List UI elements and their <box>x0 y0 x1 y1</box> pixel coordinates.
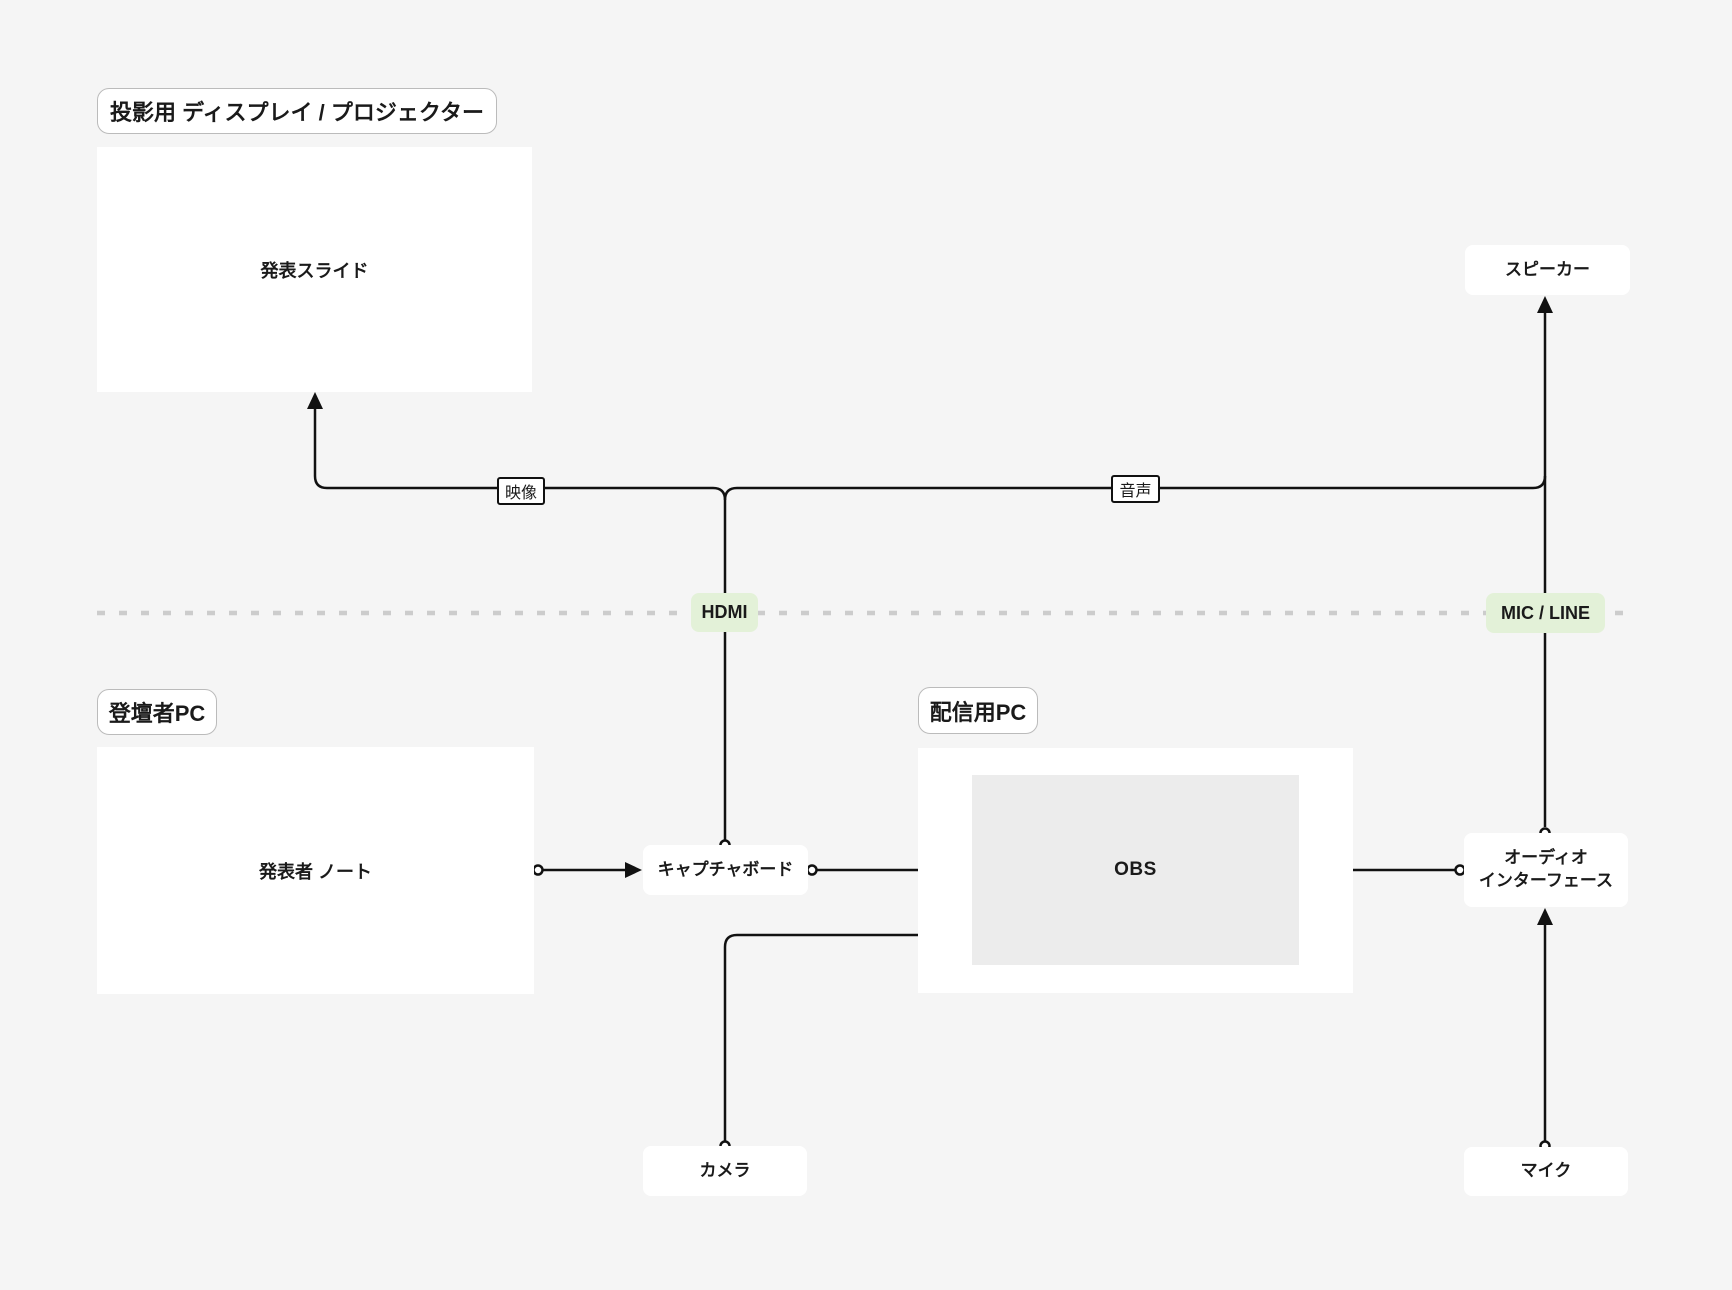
node-slides-label: 発表スライド <box>261 257 369 283</box>
edge-label-video-text: 映像 <box>505 479 537 503</box>
node-capture-board-label: キャプチャボード <box>658 859 794 882</box>
connector-label-hdmi: HDMI <box>691 593 758 632</box>
section-label-presenter-pc: 登壇者PC <box>97 689 217 735</box>
node-camera: カメラ <box>643 1146 807 1196</box>
node-obs: OBS <box>972 775 1299 965</box>
node-audio-interface-label-line2: インターフェース <box>1479 870 1613 893</box>
node-speaker-label: スピーカー <box>1505 259 1590 282</box>
connector-label-hdmi-text: HDMI <box>702 602 748 623</box>
edge-label-audio: 音声 <box>1111 475 1160 503</box>
node-capture-board: キャプチャボード <box>643 845 808 895</box>
connector-label-mic-line-text: MIC / LINE <box>1501 603 1590 624</box>
node-audio-interface-label-line1: オーディオ <box>1504 847 1588 870</box>
section-label-projector: 投影用 ディスプレイ / プロジェクター <box>97 88 497 134</box>
node-camera-label: カメラ <box>700 1160 751 1183</box>
arrow-into-speaker-icon <box>1537 296 1553 313</box>
connector-label-mic-line: MIC / LINE <box>1486 593 1605 633</box>
node-presenter-notes: 発表者 ノート <box>97 747 534 994</box>
av-setup-diagram: 投影用 ディスプレイ / プロジェクター 登壇者PC 配信用PC 発表スライド … <box>0 0 1732 1290</box>
node-slides: 発表スライド <box>97 147 532 392</box>
circle-notes-out-icon <box>534 866 543 875</box>
section-label-streaming-pc-text: 配信用PC <box>930 695 1027 727</box>
circle-capture-out-icon <box>808 866 817 875</box>
node-presenter-notes-label: 発表者 ノート <box>259 858 372 884</box>
node-mic: マイク <box>1464 1147 1628 1196</box>
node-speaker: スピーカー <box>1465 245 1630 295</box>
node-audio-interface: オーディオ インターフェース <box>1464 833 1628 907</box>
section-label-streaming-pc: 配信用PC <box>918 687 1038 734</box>
arrow-into-slides-icon <box>307 392 323 409</box>
arrow-into-audio-interface-icon <box>1537 908 1553 925</box>
node-mic-label: マイク <box>1521 1160 1572 1183</box>
arrow-into-capture-icon <box>625 862 642 878</box>
section-label-projector-text: 投影用 ディスプレイ / プロジェクター <box>110 95 484 127</box>
node-obs-label: OBS <box>1114 859 1157 881</box>
edge-label-video: 映像 <box>497 477 545 505</box>
section-label-presenter-pc-text: 登壇者PC <box>109 696 206 728</box>
edge-label-audio-text: 音声 <box>1119 477 1151 501</box>
